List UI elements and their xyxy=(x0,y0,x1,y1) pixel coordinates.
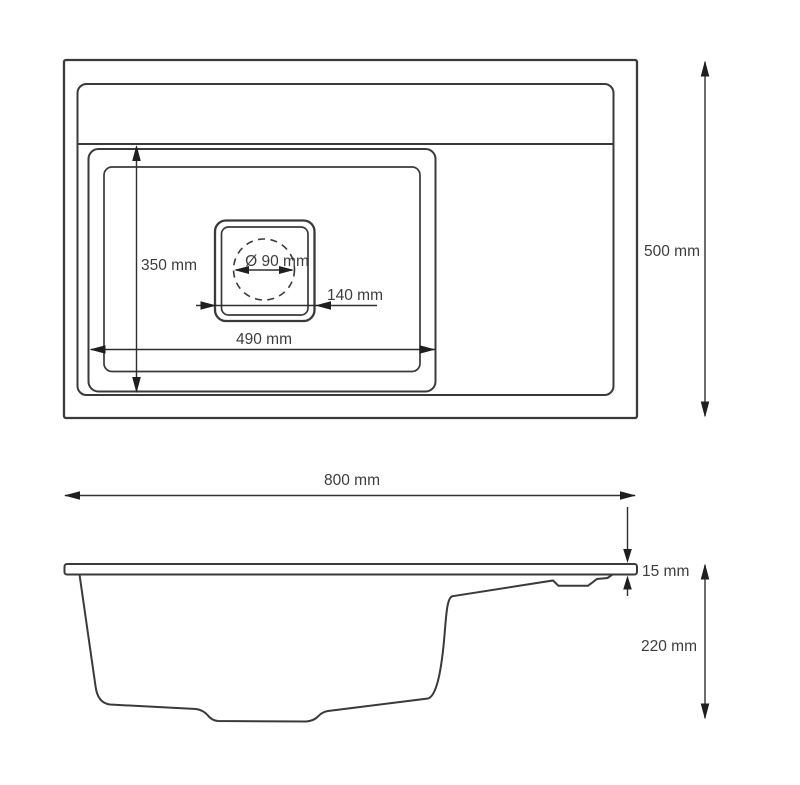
dim-label-drain-width: 140 mm xyxy=(327,287,383,304)
arrowhead-down-icon xyxy=(623,549,632,563)
top-view: Ø 90 mm 140 mm 490 mm 350 mm xyxy=(64,60,709,418)
dim-overall-depth: 500 mm xyxy=(644,61,709,418)
dim-label-overall-depth: 500 mm xyxy=(644,243,700,260)
arrowhead-down-icon xyxy=(701,402,710,418)
arrowhead-up-icon xyxy=(701,564,710,580)
dim-overall-height: 220 mm xyxy=(641,564,709,720)
dim-bowl-depth: 350 mm xyxy=(132,145,197,393)
arrowhead-right-icon xyxy=(420,345,436,354)
arrowhead-left-icon xyxy=(90,345,106,354)
dim-rim-thickness: 15 mm xyxy=(623,507,689,596)
arrowhead-up-icon xyxy=(132,145,141,161)
sink-outer-outline xyxy=(64,60,637,418)
sink-dimension-drawing: Ø 90 mm 140 mm 490 mm 350 mm xyxy=(0,0,800,785)
arrowhead-right-icon xyxy=(620,491,636,500)
rim-profile xyxy=(65,564,638,575)
arrowhead-left-icon xyxy=(64,491,80,500)
dim-label-overall-width: 800 mm xyxy=(324,472,380,489)
dim-bowl-width: 490 mm xyxy=(90,331,436,354)
sink-inner-rim xyxy=(78,84,614,395)
dim-label-drain-diameter: Ø 90 mm xyxy=(245,253,309,270)
dim-overall-width: 800 mm xyxy=(64,472,636,500)
arrowhead-up-icon xyxy=(701,61,710,77)
dim-label-rim-thickness: 15 mm xyxy=(642,563,689,580)
dim-drain-diameter: Ø 90 mm xyxy=(234,253,309,274)
technical-drawing-canvas: Ø 90 mm 140 mm 490 mm 350 mm xyxy=(0,0,800,785)
side-view: 800 mm 15 mm 220 mm xyxy=(64,472,709,722)
body-profile xyxy=(80,575,632,722)
arrowhead-up-icon xyxy=(623,576,632,590)
dim-label-bowl-depth: 350 mm xyxy=(141,257,197,274)
dim-label-overall-height: 220 mm xyxy=(641,638,697,655)
dim-label-bowl-width: 490 mm xyxy=(236,331,292,348)
dim-drain-width: 140 mm xyxy=(196,287,383,310)
arrowhead-down-icon xyxy=(701,704,710,720)
